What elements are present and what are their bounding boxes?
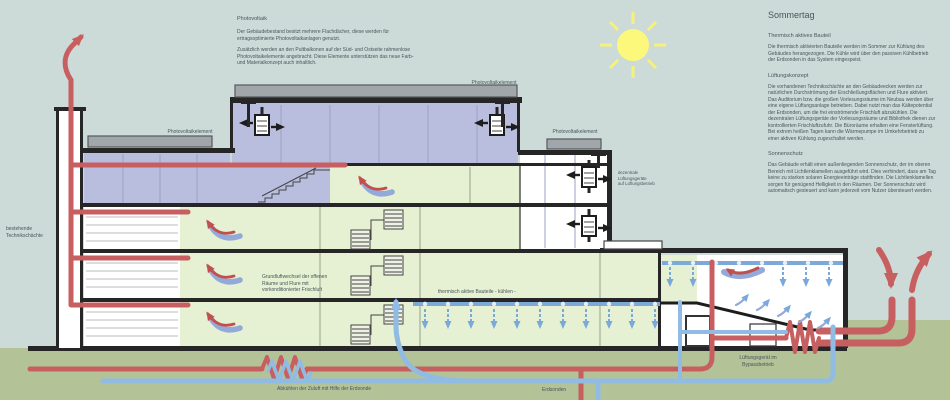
pv-element-label: Photovoltaikelement <box>543 129 607 136</box>
sun-icon <box>600 12 666 78</box>
pv-element-label: Photovoltaikelement <box>158 129 222 136</box>
section-body: Die thermisch aktivierten Bauteile werde… <box>768 44 936 64</box>
erdsonden-label: Erdsonden <box>542 387 587 394</box>
exhaust-chimney-arrow <box>65 37 81 80</box>
pv-element-label: Photovoltaikelement <box>462 80 526 87</box>
outside-air-intake-arrow <box>879 250 891 284</box>
section-heading: Thermisch aktives Bauteil <box>768 33 936 39</box>
pv-panel <box>235 85 517 97</box>
abkuehlen-zuluft-label: Abkühlen der Zuluft mit Hilfe der Erdson… <box>277 386 417 393</box>
exhaust-air-arrow <box>912 254 929 290</box>
photovoltaik-paragraph: Der Gebäudebestand besitzt mehrere Flach… <box>237 29 415 42</box>
sommertag-text-block: Sommertag Thermisch aktives Bauteil Die … <box>768 10 936 204</box>
section-body: Das Gebäude erhält einen außenliegenden … <box>768 162 936 195</box>
photovoltaik-title: Photovoltaik <box>237 16 415 22</box>
section-body: Die vorhandenen Technikschächte an den G… <box>768 84 936 143</box>
dezentrale-lueftung-label: dezentrale Lüftungsgeräte auf Lüftungsbe… <box>618 170 688 187</box>
grundluftwechsel-label: Grundluftwechsel der offenen Räume und F… <box>262 274 362 294</box>
technikschaechte-label: bestehende Technikschächte <box>6 226 66 239</box>
thermisch-aktive-bauteile-label: thermisch aktive Bauteile - kühlen - <box>438 289 558 296</box>
pv-panel <box>88 136 212 147</box>
pv-panel <box>547 139 601 149</box>
photovoltaik-paragraph: Zusätzlich werden an den Pultbalkonen au… <box>237 47 415 67</box>
sommertag-title: Sommertag <box>768 10 936 20</box>
section-heading: Sonnenschutz <box>768 151 936 157</box>
photovoltaik-text-block: Photovoltaik Der Gebäudebestand besitzt … <box>237 16 415 72</box>
section-heading: Lüftungskonzept <box>768 73 936 79</box>
lueftungsgeraet-bypass-label: Lüftungsgerät im Bypassbetrieb <box>720 355 796 368</box>
diagram-canvas: Photovoltaik Der Gebäudebestand besitzt … <box>0 0 950 400</box>
